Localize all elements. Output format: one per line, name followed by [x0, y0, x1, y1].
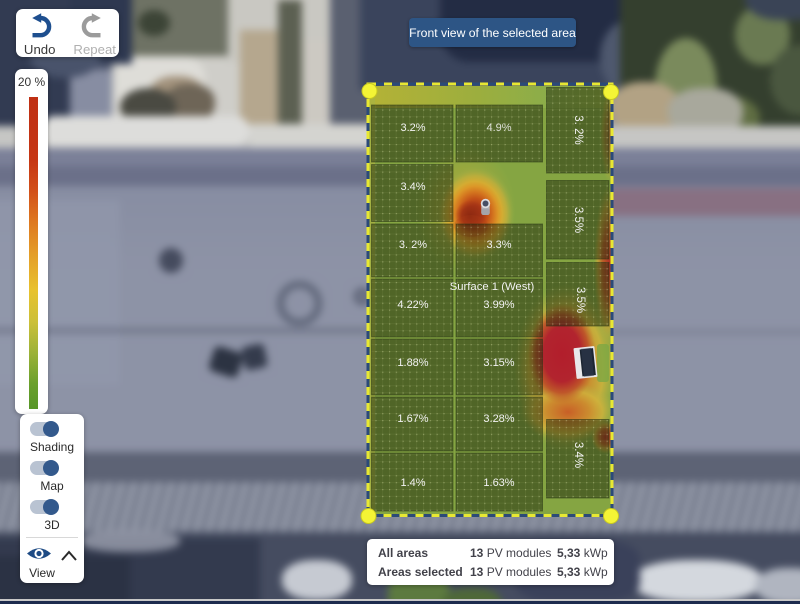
- svg-text:1.88%: 1.88%: [397, 357, 428, 369]
- svg-text:1.67%: 1.67%: [397, 413, 428, 425]
- svg-text:3.4%: 3.4%: [572, 442, 584, 468]
- svg-text:Repeat: Repeat: [73, 42, 116, 57]
- svg-text:Surface 1 (West): Surface 1 (West): [450, 281, 535, 293]
- svg-text:3.4%: 3.4%: [400, 181, 425, 193]
- svg-text:3.5%: 3.5%: [574, 287, 586, 313]
- svg-text:3.15%: 3.15%: [483, 357, 514, 369]
- svg-text:3.3%: 3.3%: [486, 239, 511, 251]
- svg-text:3.5%: 3.5%: [572, 207, 584, 233]
- svg-text:3. 2%: 3. 2%: [572, 115, 584, 144]
- svg-text:3.28%: 3.28%: [483, 413, 514, 425]
- svg-text:1.4%: 1.4%: [400, 477, 425, 489]
- svg-text:1.63%: 1.63%: [483, 477, 514, 489]
- svg-text:Undo: Undo: [24, 42, 56, 57]
- svg-text:4.9%: 4.9%: [486, 122, 511, 134]
- svg-text:3.99%: 3.99%: [483, 299, 514, 311]
- svg-text:3. 2%: 3. 2%: [399, 239, 427, 251]
- svg-text:3.2%: 3.2%: [400, 122, 425, 134]
- svg-text:4.22%: 4.22%: [397, 299, 428, 311]
